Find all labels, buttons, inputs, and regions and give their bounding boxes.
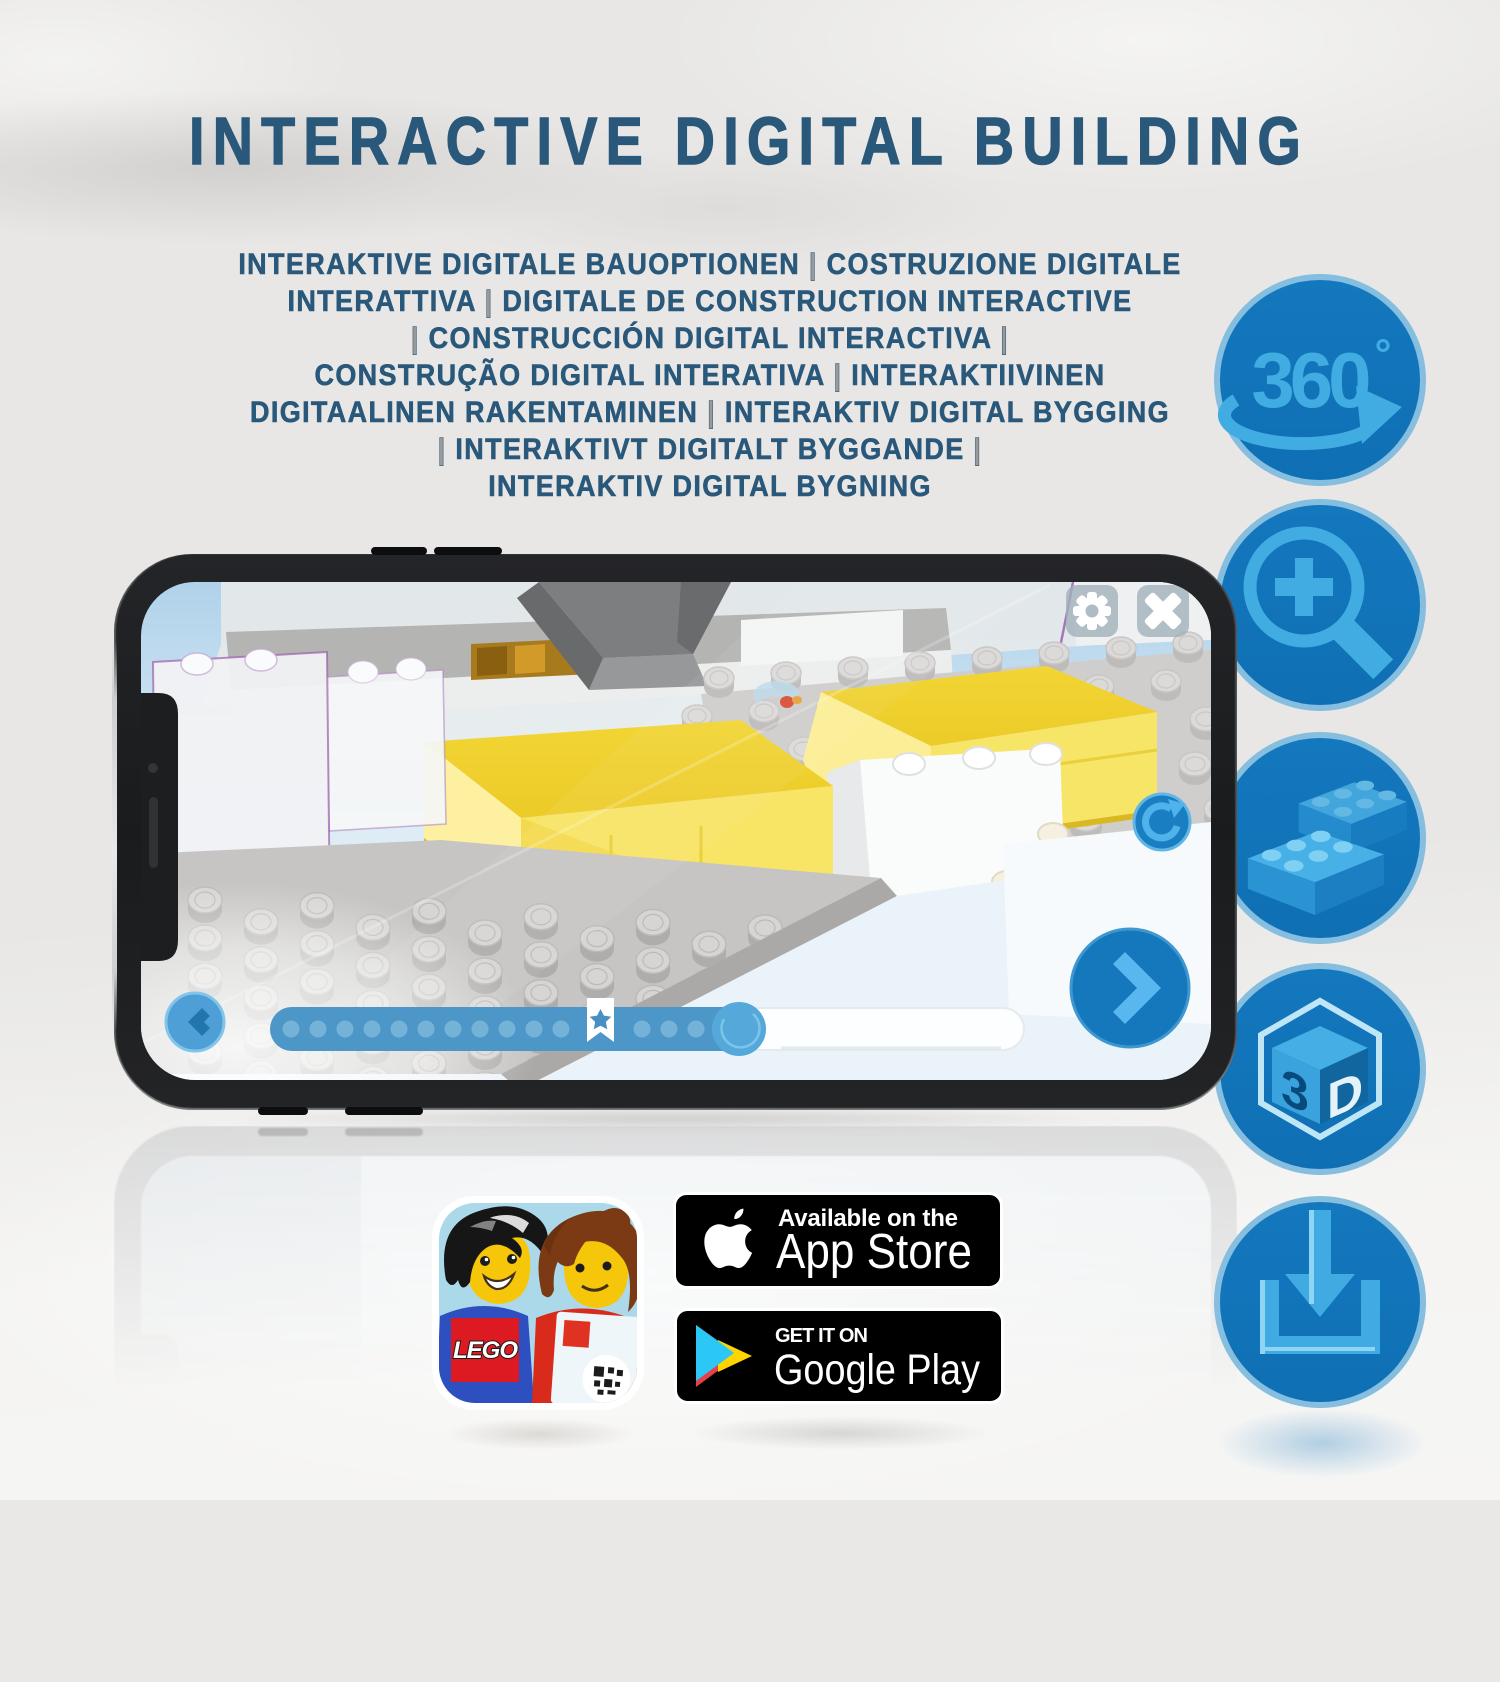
svg-text:GET IT ON: GET IT ON [775, 1325, 869, 1347]
svg-text:3: 3 [1281, 1058, 1309, 1125]
svg-text:App Store: App Store [776, 1225, 972, 1279]
svg-text:360: 360 [1251, 336, 1369, 424]
svg-text:Google Play: Google Play [774, 1346, 980, 1394]
svg-text:LEGO: LEGO [453, 1337, 518, 1364]
svg-text:°: ° [1375, 330, 1392, 377]
